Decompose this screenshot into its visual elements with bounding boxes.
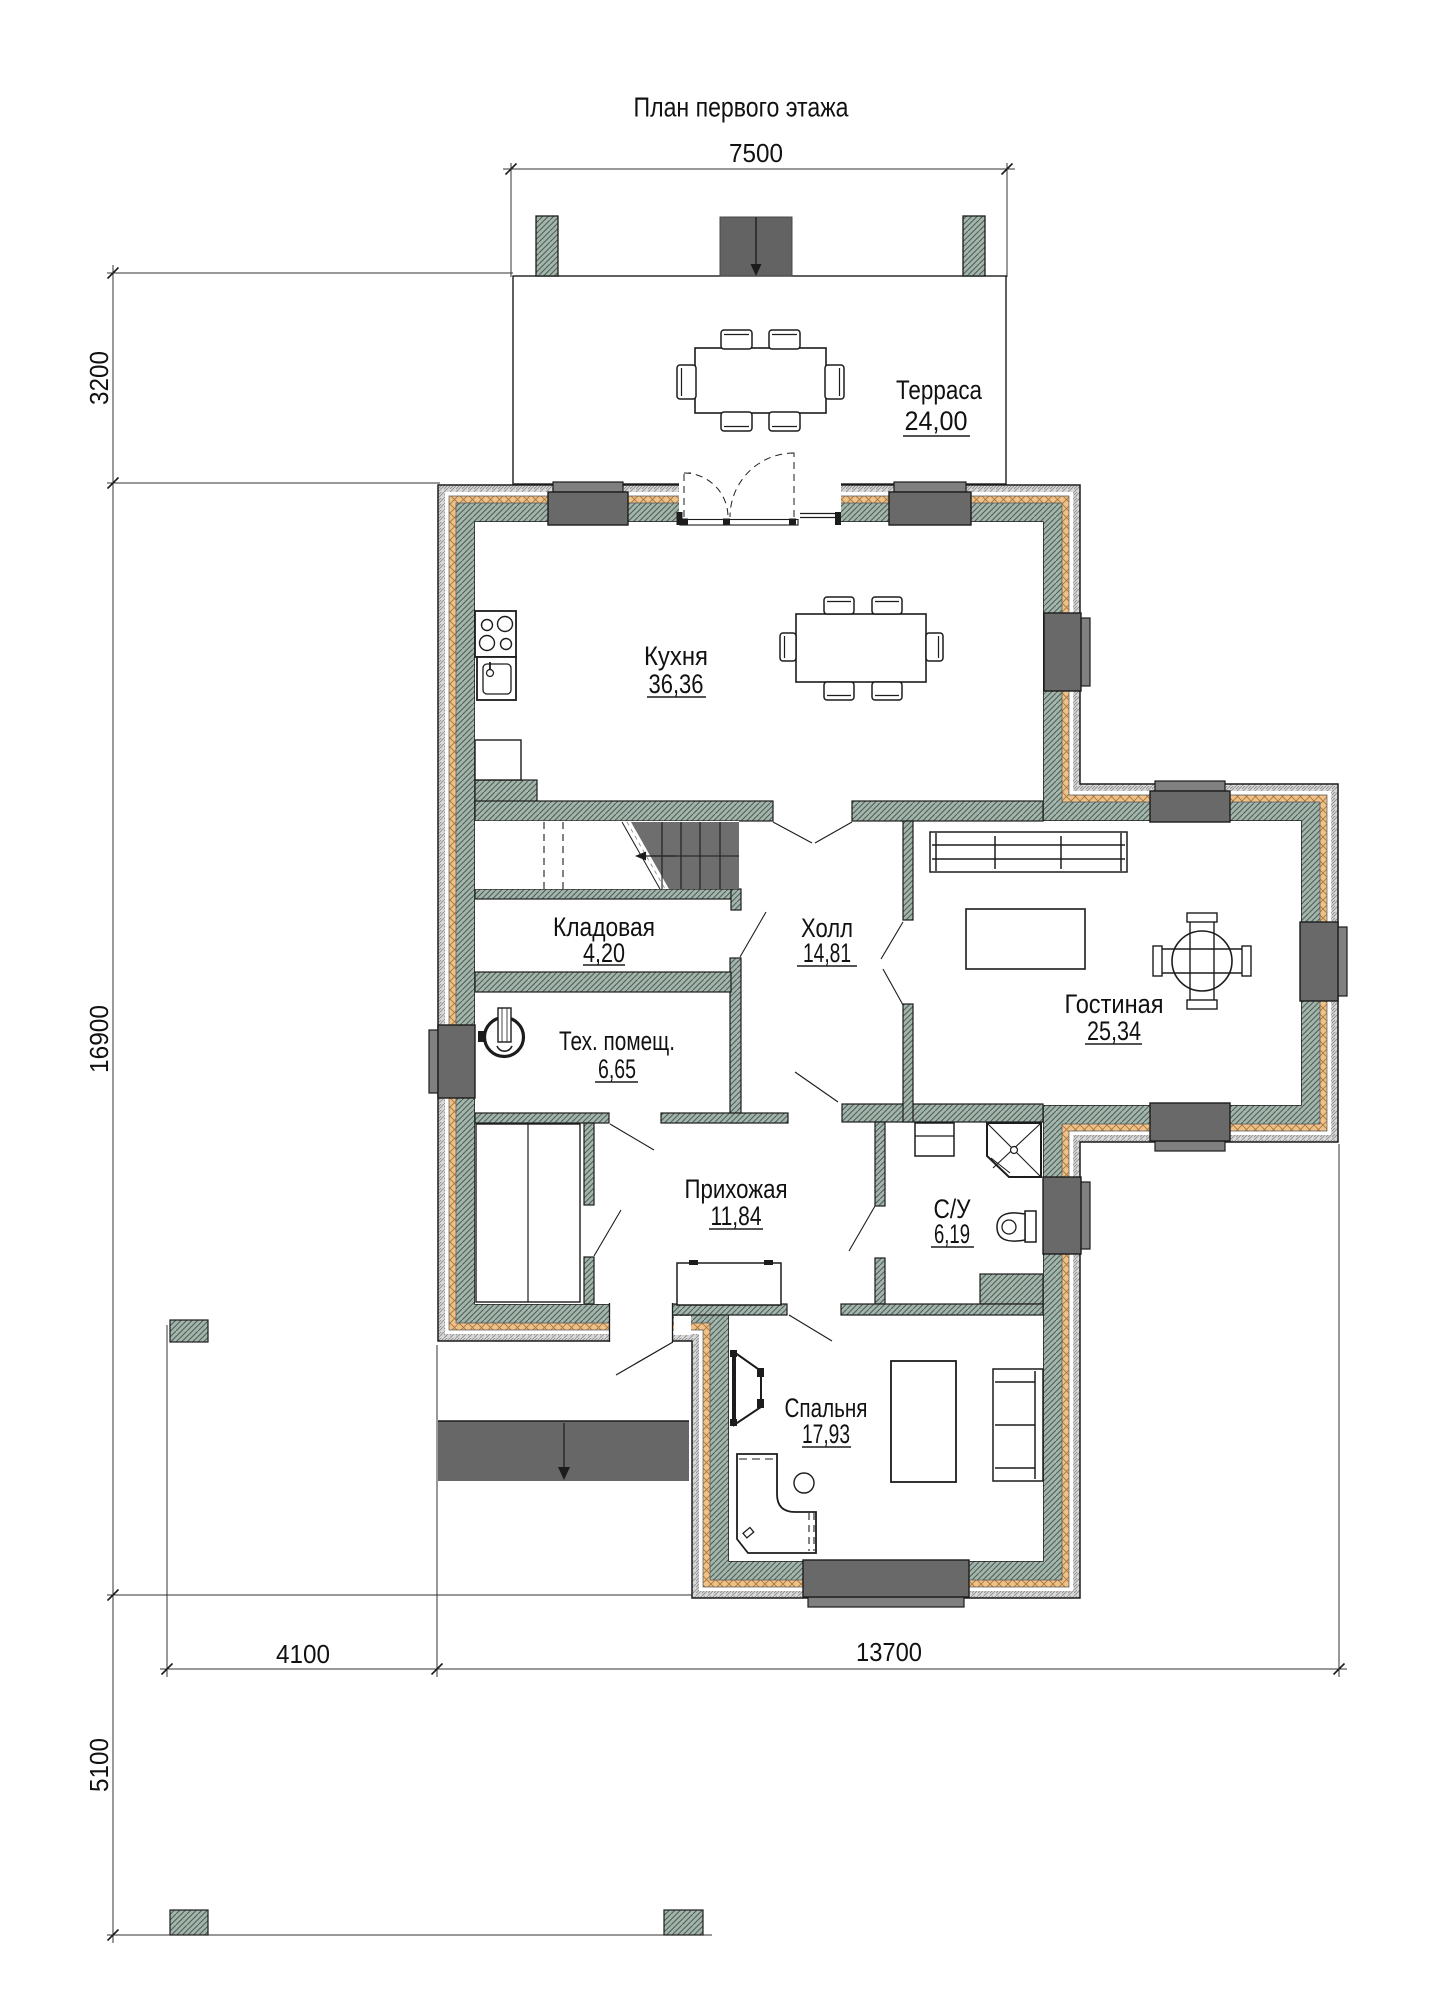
svg-text:6,65: 6,65 <box>598 1054 636 1084</box>
svg-text:11,84: 11,84 <box>711 1201 762 1231</box>
svg-text:3200: 3200 <box>84 351 114 405</box>
svg-text:Кухня: Кухня <box>644 641 708 671</box>
svg-text:13700: 13700 <box>856 1637 922 1667</box>
svg-text:Гостиная: Гостиная <box>1065 989 1164 1019</box>
svg-text:Терраса: Терраса <box>896 375 983 405</box>
svg-text:16900: 16900 <box>84 1005 114 1073</box>
svg-text:Прихожая: Прихожая <box>685 1174 788 1204</box>
svg-text:Тех. помещ.: Тех. помещ. <box>559 1026 675 1056</box>
svg-text:6,19: 6,19 <box>934 1219 970 1249</box>
svg-text:5100: 5100 <box>84 1738 114 1792</box>
svg-text:14,81: 14,81 <box>803 938 851 968</box>
svg-text:4100: 4100 <box>276 1639 330 1669</box>
svg-text:24,00: 24,00 <box>905 406 968 436</box>
svg-text:План первого этажа: План первого этажа <box>634 92 849 123</box>
svg-text:36,36: 36,36 <box>649 669 704 699</box>
svg-text:17,93: 17,93 <box>802 1419 850 1449</box>
svg-text:25,34: 25,34 <box>1087 1016 1141 1046</box>
svg-text:4,20: 4,20 <box>583 938 625 968</box>
svg-text:7500: 7500 <box>729 138 783 168</box>
